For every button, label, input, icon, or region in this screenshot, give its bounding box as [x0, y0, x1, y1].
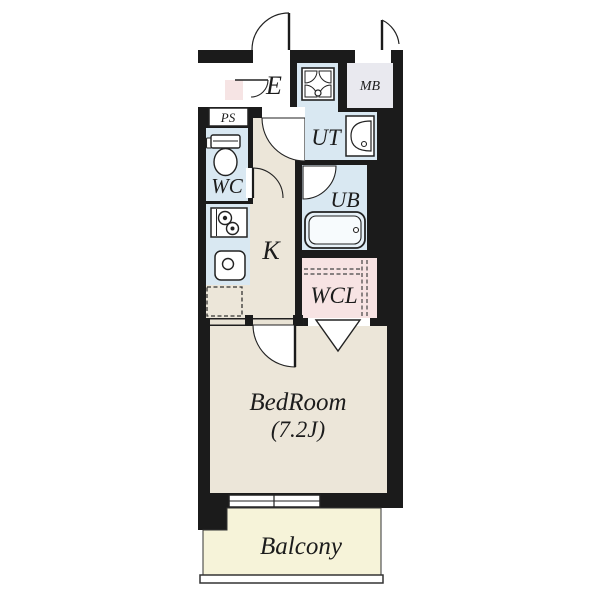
wash-basin-drain-icon [362, 142, 367, 147]
toilet-bowl [214, 149, 237, 176]
label-bedroom-size: (7.2J) [271, 417, 325, 442]
label-kitchen: K [261, 236, 281, 265]
entrance-door-arc [252, 13, 289, 50]
washing-machine-pan [302, 68, 334, 100]
label-utility: UT [311, 125, 343, 150]
partition-stub-right [293, 315, 303, 326]
kitchen-sink [215, 251, 245, 280]
washer-drain-icon [315, 90, 321, 96]
label-balcony: Balcony [260, 533, 343, 560]
partition-wall [206, 319, 303, 325]
label-entrance: E [265, 71, 282, 100]
stove-burner-center [223, 216, 227, 220]
entrance-step-pad [225, 80, 243, 100]
kitchen-sink-drain-icon [223, 259, 234, 270]
entrance-door-opening [253, 50, 290, 63]
bathtub-drain-icon [354, 228, 359, 233]
kitchen-floor-lower [206, 285, 250, 318]
label-meter-box: MB [359, 79, 381, 94]
label-bedroom: BedRoom [249, 389, 346, 416]
hall-door-opening [262, 107, 305, 118]
floorplan-canvas: E MB PS UT WC UB K WCL BedRoom (7.2J) Ba… [0, 0, 600, 600]
label-toilet: WC [211, 174, 243, 198]
stove [211, 208, 247, 237]
meter-box-door-arc [382, 20, 399, 44]
balcony-railing [200, 575, 383, 583]
partition-stub-left [198, 318, 210, 326]
bathtub [305, 212, 365, 248]
label-pipe-space: PS [220, 110, 236, 125]
partition-stub-mid [245, 315, 253, 326]
label-closet: WCL [310, 283, 357, 308]
wash-basin [346, 116, 374, 156]
stove-burner-center-2 [231, 227, 235, 231]
floorplan-svg: E MB PS UT WC UB K WCL BedRoom (7.2J) Ba… [0, 0, 600, 600]
label-unit-bath: UB [330, 187, 359, 212]
meter-box-door-opening [355, 50, 391, 63]
